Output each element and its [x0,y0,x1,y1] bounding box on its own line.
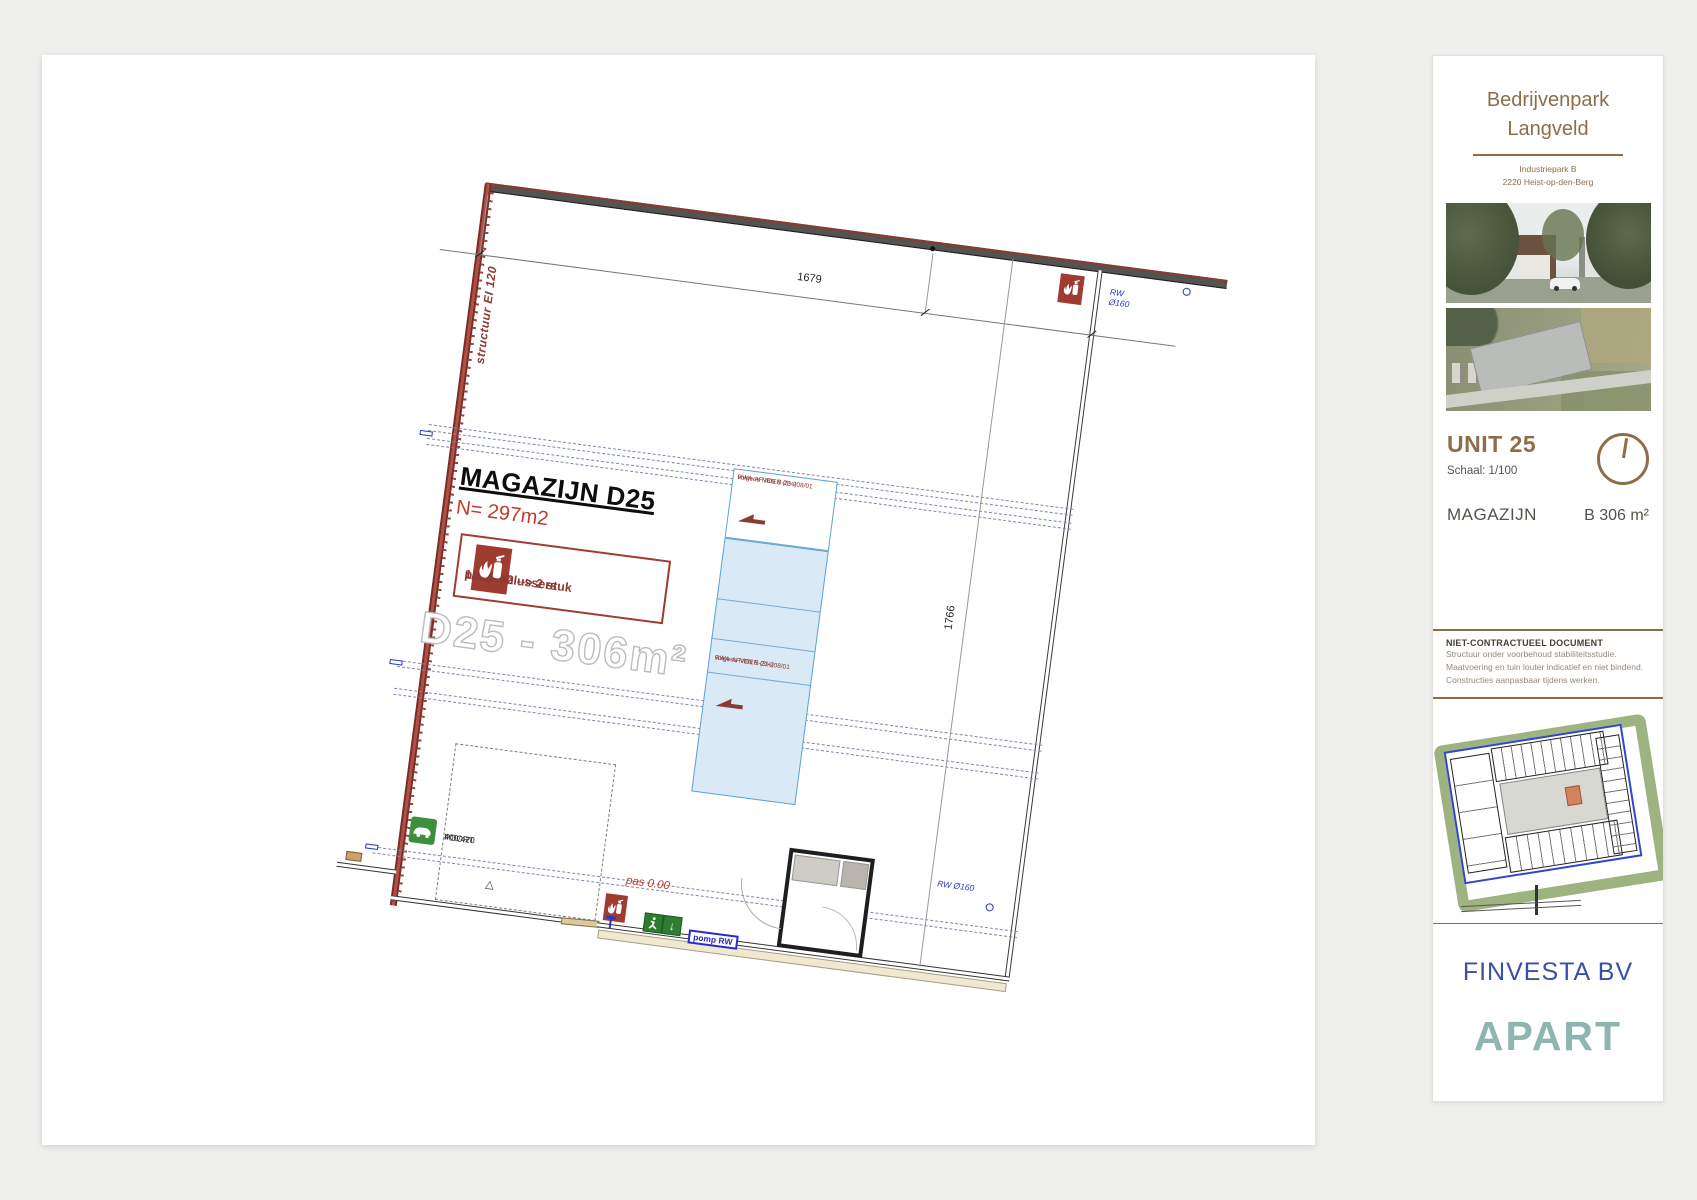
drawing-sheet: 1679 1766 structuur EI 120 MAGAZIJN D25 … [42,55,1315,1145]
skylight-band: RWA-AFVOER (3%) volgens NBN S-21-208/01 [691,538,829,806]
exit-man-icon [643,912,664,933]
axis-end-marker [365,843,379,850]
counter [840,861,869,890]
rwa-mid-line2: volgens NBN S-21-208/01 [714,654,790,673]
disclaimer-divider-bottom [1433,697,1663,699]
floor-plan: 1679 1766 structuur EI 120 MAGAZIJN D25 … [397,190,1103,980]
aerial-photo [1446,308,1651,411]
developer-logo: FINVESTA BV [1433,958,1663,987]
witness-line [925,253,934,313]
disclaimer-line: Constructies aanpasbaar tijdens werken. [1446,674,1650,687]
toilet-room [777,848,875,958]
site-key-plan [1433,703,1663,915]
photo-tree [1542,209,1584,261]
rw-pipe-marker [1182,287,1191,296]
info-sidebar: Bedrijvenpark Langveld Industriepark B 2… [1432,55,1664,1102]
dimension-width-label: 1679 [797,271,823,286]
neighbour-wall-block [345,851,362,862]
brand-logo: APART [1433,1013,1663,1060]
fire-extinguisher-icon [1057,273,1085,305]
compass-icon [1597,433,1649,485]
unit-type-row: MAGAZIJN B 306 m² [1447,505,1649,525]
gate-label-line2: 400/420 [443,832,475,847]
exit-arrow: ↓ [668,919,676,932]
level-label: pas 0.00 [625,875,670,893]
wall-top [485,182,1228,289]
rwa-top-line2: volgens NBN S-21-208/01 [737,474,813,493]
dimension-line-height [919,259,1013,967]
slope-arrow-icon [715,695,745,713]
skylight-divider [718,598,820,612]
rwa-zone-top: RWA-AFVOER (3%) volgens NBN S-21-208/01 [725,468,838,551]
unit-type-label: MAGAZIJN [1447,505,1537,525]
exit-arrow-cell: ↓ [661,915,682,936]
unit-area-label: B 306 m² [1584,507,1649,525]
counter [791,854,840,886]
slope-arrow-icon [738,510,768,528]
logo-divider [1433,923,1663,924]
rw-pipe-label-top: RW Ø160 [1108,287,1131,310]
skylight-divider [712,638,814,652]
title-divider [1473,154,1623,156]
site-highlighted-unit [1565,785,1583,806]
photo-field [1581,308,1651,363]
page: 1679 1766 structuur EI 120 MAGAZIJN D25 … [0,0,1697,1200]
wall-right [1004,270,1102,981]
project-address: Industriepark B 2220 Heist-op-den-Berg [1433,163,1663,189]
project-title: Bedrijvenpark Langveld [1433,86,1663,144]
neighbour-wall-stub [336,862,396,875]
axis-end-marker [419,430,433,437]
dimension-height-label: 1766 [942,597,959,638]
exterior-render-photo [1446,203,1651,303]
disclaimer-block: NIET-CONTRACTUEEL DOCUMENT Structuur ond… [1433,631,1663,692]
project-title-line2: Langveld [1433,115,1663,144]
project-title-line1: Bedrijvenpark [1433,86,1663,115]
rw-pipe-label-bottom: RW Ø160 [937,878,975,893]
gate-triangle-icon: △ [485,877,495,891]
disclaimer-line: Structuur onder voorbehoud stabiliteitss… [1446,648,1650,661]
unit-header: UNIT 25 Schaal: 1/100 [1447,431,1536,477]
unit-header-row: UNIT 25 Schaal: 1/100 [1447,431,1649,485]
door-swing-arc [817,907,862,952]
disclaimer-line: Maatvoering en tuin louter indicatief en… [1446,661,1650,674]
scale-label: Schaal: 1/100 [1447,465,1536,477]
site-boundary [1444,723,1643,884]
compass-needle [1622,438,1628,458]
gate-label: POORT 400/420 [445,832,604,853]
site-access-road [1535,885,1538,915]
address-line1: Industriepark B [1433,163,1663,176]
photo-car-wheel [1554,286,1559,291]
photo-car-wheel [1572,286,1577,291]
skylight-divider [708,672,810,686]
rw-pipe-marker [985,903,994,912]
reference-dot [930,246,936,252]
address-line2: 2220 Heist-op-den-Berg [1433,176,1663,189]
gate-zone: POORT 400/420 [435,743,616,921]
rwa-note-mid: RWA-AFVOER (3%) volgens NBN S-21-208/01 [715,654,812,667]
door-swing-arc [735,878,787,930]
ev-charging-icon [408,816,437,845]
unit-title: UNIT 25 [1447,431,1536,458]
axis-end-marker [389,659,403,666]
disclaimer-title: NIET-CONTRACTUEEL DOCUMENT [1446,638,1650,648]
